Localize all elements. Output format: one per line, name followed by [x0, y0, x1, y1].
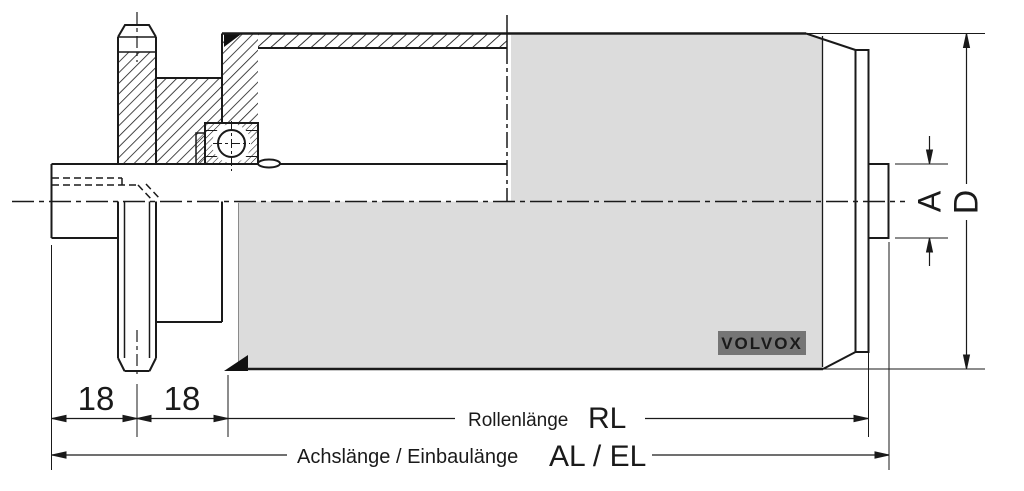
brand-label: VOLVOX — [721, 334, 803, 353]
label-axle-length: Achslänge / Einbaulänge — [297, 446, 518, 468]
label-dim-18-right: 18 — [164, 380, 201, 417]
label-axle-diameter: A — [912, 190, 948, 212]
section-hatching — [118, 34, 507, 165]
seal-lip — [258, 160, 280, 168]
end-cap-hatch — [222, 34, 258, 124]
label-dim-18-left: 18 — [78, 380, 115, 417]
label-roller-length: Rollenlänge — [468, 410, 568, 431]
sprocket-hub-hatch — [156, 78, 222, 123]
label-axle-length-symbol: AL / EL — [549, 440, 646, 473]
technical-drawing-canvas: VOLVOX — [0, 0, 1024, 491]
brand-badge: VOLVOX — [718, 331, 806, 355]
roller-drawing: VOLVOX — [0, 0, 1024, 491]
hidden-spring-lines — [52, 178, 161, 201]
ball-bearing — [196, 121, 280, 171]
bearing-inner-race — [196, 133, 205, 164]
sprocket-plate-hatch — [118, 52, 156, 164]
tube-wall-hatch — [258, 34, 507, 49]
label-roller-length-symbol: RL — [588, 402, 626, 435]
label-roller-diameter: D — [948, 190, 986, 215]
tube-upper-exterior — [511, 35, 822, 202]
